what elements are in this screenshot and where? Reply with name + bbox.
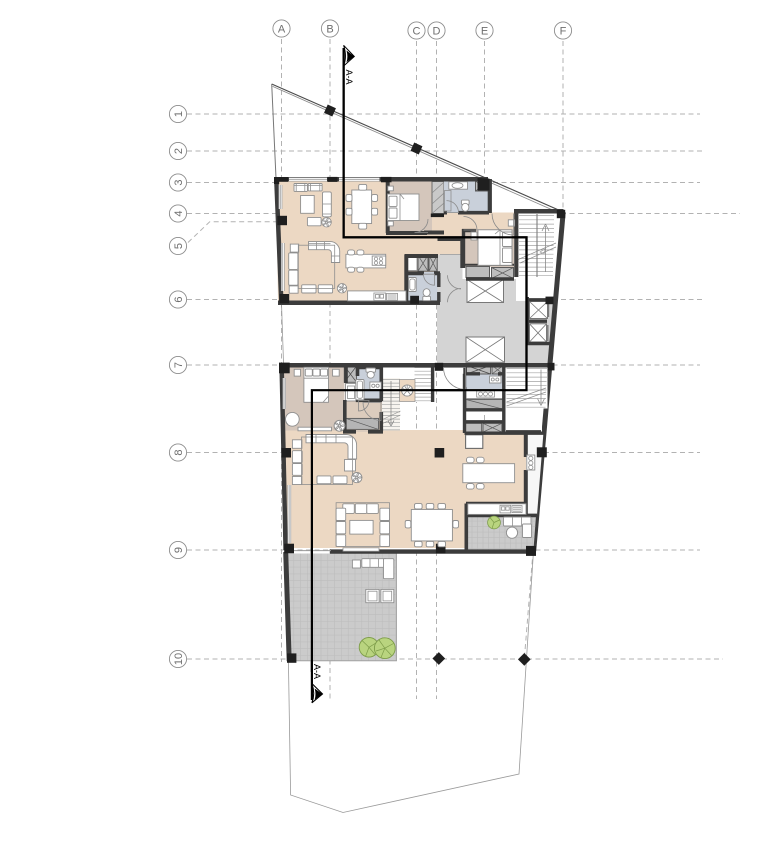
svg-text:9: 9	[173, 547, 185, 553]
svg-text:A: A	[278, 24, 286, 36]
svg-text:B: B	[326, 24, 333, 36]
svg-text:3: 3	[173, 179, 185, 185]
svg-text:D: D	[433, 26, 441, 38]
svg-text:7: 7	[173, 362, 185, 368]
svg-text:6: 6	[173, 296, 185, 302]
svg-text:4: 4	[173, 210, 185, 216]
svg-text:2: 2	[173, 148, 185, 154]
svg-text:1: 1	[173, 111, 185, 117]
svg-text:A-A: A-A	[344, 70, 354, 85]
svg-text:8: 8	[173, 449, 185, 455]
svg-text:5: 5	[173, 243, 185, 249]
svg-text:E: E	[481, 26, 488, 38]
svg-text:10: 10	[173, 653, 185, 665]
svg-text:F: F	[560, 26, 567, 38]
svg-text:C: C	[413, 26, 421, 38]
svg-text:A-A: A-A	[312, 664, 322, 679]
